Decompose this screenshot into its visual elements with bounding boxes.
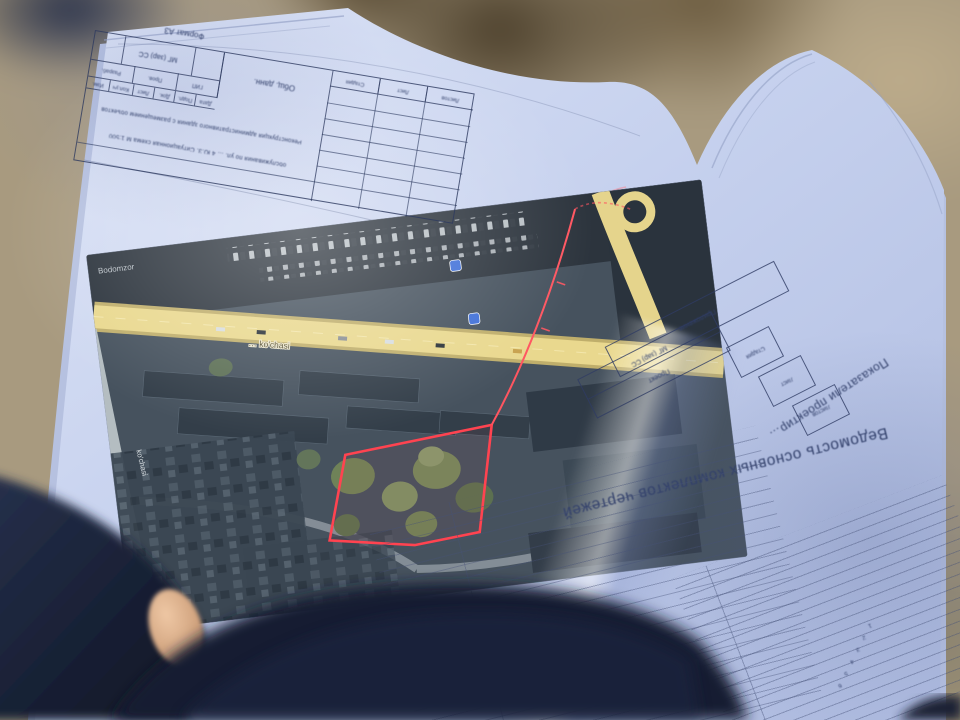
photo-scene: … ko'chasi ko'chasi Bodomzor Формат А3 М… [0, 0, 960, 720]
foreground [0, 0, 960, 720]
jacket-corner [898, 696, 960, 720]
